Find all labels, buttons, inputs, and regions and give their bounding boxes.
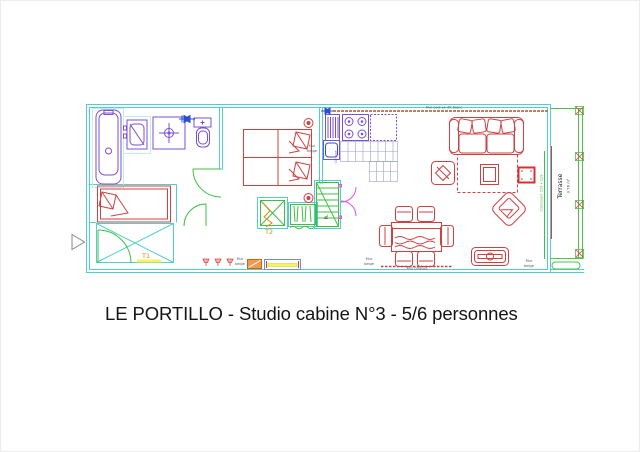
bathtub bbox=[96, 110, 121, 184]
ceiling-light bbox=[304, 194, 313, 203]
terrace: Coulissant 229 x 229 Terrasse 3.76 m² bbox=[540, 107, 584, 270]
corridor-door-arc bbox=[184, 204, 206, 226]
entry-arrow-icon bbox=[72, 235, 85, 250]
kitchen: Cuisine bbox=[321, 108, 398, 182]
stove bbox=[343, 115, 369, 141]
label-mur-beige-bed: Mur bbox=[309, 144, 316, 148]
label-terrasse: Terrasse bbox=[557, 173, 564, 199]
ceiling-light bbox=[304, 119, 313, 128]
counter-tiles bbox=[341, 142, 398, 182]
label-mur-beige-1: Mur bbox=[237, 257, 244, 261]
worktop bbox=[371, 115, 397, 141]
wall-light bbox=[215, 259, 221, 266]
terrace-bench bbox=[552, 262, 580, 269]
dining-table bbox=[392, 223, 442, 252]
armchair-corner bbox=[491, 191, 528, 228]
shower bbox=[153, 117, 185, 149]
coffee-table bbox=[481, 165, 499, 185]
wardrobe-ladder bbox=[261, 201, 285, 228]
dining-chair bbox=[396, 207, 413, 222]
label-mur-beige-bed: beige bbox=[307, 149, 317, 153]
label-mur-beige-2: beige bbox=[364, 262, 374, 266]
bathroom-door-arc bbox=[193, 169, 221, 197]
label-mur-bois: Mur bois en dit blanc bbox=[426, 106, 463, 110]
page: T1 Mur beige bbox=[0, 0, 640, 452]
dining-chair bbox=[396, 252, 413, 267]
label-t1: T1 bbox=[141, 252, 150, 260]
dish-drainer bbox=[326, 115, 340, 141]
wall-light bbox=[227, 259, 233, 266]
sofa bbox=[450, 118, 524, 155]
console-orange bbox=[248, 260, 262, 269]
cabin-door-arc bbox=[98, 230, 131, 263]
dining-chair bbox=[418, 252, 435, 267]
caption-title: LE PORTILLO - Studio cabine N°3 - 5/6 pe… bbox=[105, 303, 518, 325]
label-mur-beige-3: beige bbox=[524, 264, 534, 268]
label-mur-beige-1: beige bbox=[235, 262, 245, 266]
dining-chair bbox=[380, 226, 393, 247]
floor-plan: T1 Mur beige bbox=[1, 1, 640, 452]
folding-door bbox=[339, 185, 356, 219]
rug bbox=[458, 155, 518, 193]
label-pl: PL bbox=[324, 214, 329, 219]
label-mur-beige-2: Mur bbox=[366, 257, 373, 261]
dining-chair bbox=[418, 207, 435, 222]
label-terrasse-area: 3.76 m² bbox=[566, 178, 571, 193]
heater bbox=[472, 248, 509, 266]
wall-light bbox=[203, 259, 209, 266]
dining-chair bbox=[441, 226, 454, 247]
label-coulissant: Coulissant 229 x 229 bbox=[540, 175, 544, 212]
armchair-left bbox=[432, 162, 455, 185]
toilet bbox=[194, 118, 211, 147]
double-bed bbox=[244, 130, 312, 186]
cabin-bed bbox=[97, 224, 174, 263]
console-blue bbox=[265, 260, 301, 270]
single-bed bbox=[98, 186, 171, 222]
label-mur-beige-3: Mur bbox=[526, 259, 533, 263]
wardrobe-hanging bbox=[290, 205, 316, 229]
stool bbox=[519, 168, 535, 183]
label-cuisine: Cuisine bbox=[334, 151, 338, 164]
label-t2: T2 bbox=[264, 228, 273, 236]
kitchen-tap-icon bbox=[321, 108, 335, 114]
washbasin bbox=[124, 117, 151, 154]
label-mur-briques: Mur briques bbox=[407, 266, 428, 270]
